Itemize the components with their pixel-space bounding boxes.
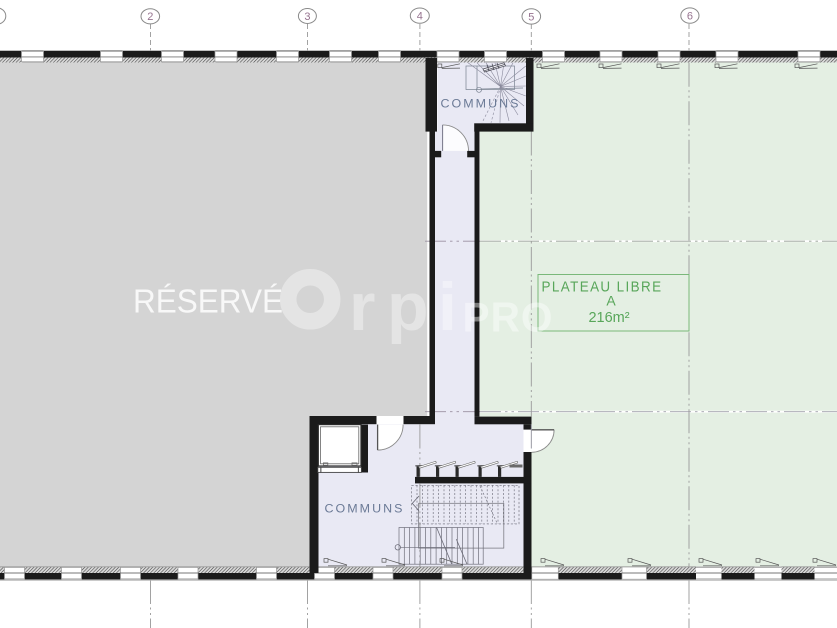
svg-text:4: 4 bbox=[417, 11, 423, 23]
svg-text:5: 5 bbox=[528, 11, 534, 23]
svg-text:3: 3 bbox=[304, 11, 310, 23]
svg-text:COMMUNS: COMMUNS bbox=[325, 502, 405, 516]
svg-text:RÉSERVÉ: RÉSERVÉ bbox=[133, 284, 283, 321]
svg-text:i: i bbox=[438, 269, 457, 345]
svg-text:216m²: 216m² bbox=[588, 310, 629, 326]
svg-text:COMMUNS: COMMUNS bbox=[441, 97, 521, 111]
svg-text:A: A bbox=[606, 293, 616, 309]
svg-text:2: 2 bbox=[147, 11, 153, 23]
svg-text:r: r bbox=[349, 269, 375, 345]
svg-text:PRO: PRO bbox=[463, 294, 554, 341]
svg-text:6: 6 bbox=[687, 11, 693, 23]
svg-text:p: p bbox=[387, 269, 429, 345]
svg-text:PLATEAU LIBRE: PLATEAU LIBRE bbox=[542, 280, 663, 296]
